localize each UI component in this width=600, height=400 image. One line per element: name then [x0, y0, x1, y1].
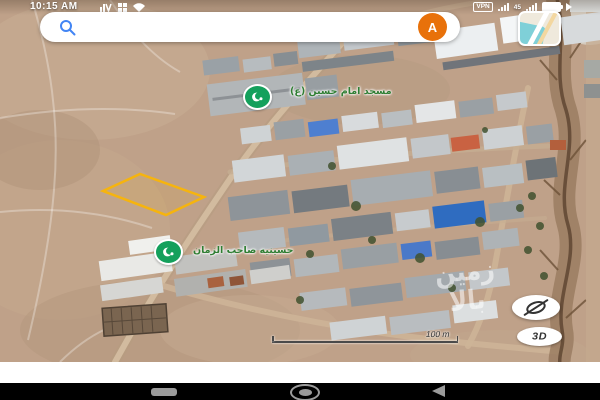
- phone-screenshot: 10:15 AM VPN 45: [0, 0, 600, 400]
- map-style-thumbnail-button[interactable]: [518, 11, 561, 46]
- clock-text: 10:15 AM: [30, 1, 78, 12]
- scale-label: 100 m: [425, 329, 451, 339]
- scale-bar: 100 m: [272, 329, 458, 343]
- volte-icon: [100, 3, 112, 12]
- mosque-poi-marker[interactable]: [243, 84, 272, 110]
- 3d-button-label: 3D: [532, 331, 547, 342]
- apps-grid-icon: [118, 3, 127, 12]
- sim-indicator: 45: [514, 4, 521, 11]
- compass-button[interactable]: [512, 295, 560, 320]
- scale-line: [272, 341, 458, 343]
- poi-label[interactable]: مسجد امام حسین (ع): [290, 86, 392, 97]
- 3d-button[interactable]: 3D: [517, 327, 562, 346]
- account-avatar-button[interactable]: A: [418, 13, 447, 41]
- signal-bars-icon: [498, 3, 509, 11]
- back-button[interactable]: [432, 385, 445, 397]
- search-icon: [59, 19, 76, 36]
- bottom-white-strip: [0, 362, 600, 383]
- avatar-letter: A: [428, 20, 437, 35]
- wifi-icon: [133, 3, 145, 12]
- poi-label[interactable]: حسینیه صاحب الزمان: [193, 245, 293, 256]
- mosque-icon: [162, 246, 175, 258]
- mosque-poi-marker[interactable]: [154, 239, 183, 265]
- arrow-icon: [566, 3, 572, 11]
- signal-bars-icon: [526, 3, 537, 11]
- home-button[interactable]: [290, 384, 320, 400]
- android-nav-bar: [0, 383, 600, 400]
- satellite-map-canvas[interactable]: [0, 0, 600, 362]
- compass-icon: [519, 299, 553, 316]
- satellite-imagery: [0, 0, 600, 362]
- mosque-icon: [251, 91, 264, 103]
- vpn-badge: VPN: [473, 2, 492, 12]
- home-icon: [299, 389, 312, 396]
- search-bar[interactable]: [40, 12, 460, 42]
- recents-button[interactable]: [151, 388, 177, 396]
